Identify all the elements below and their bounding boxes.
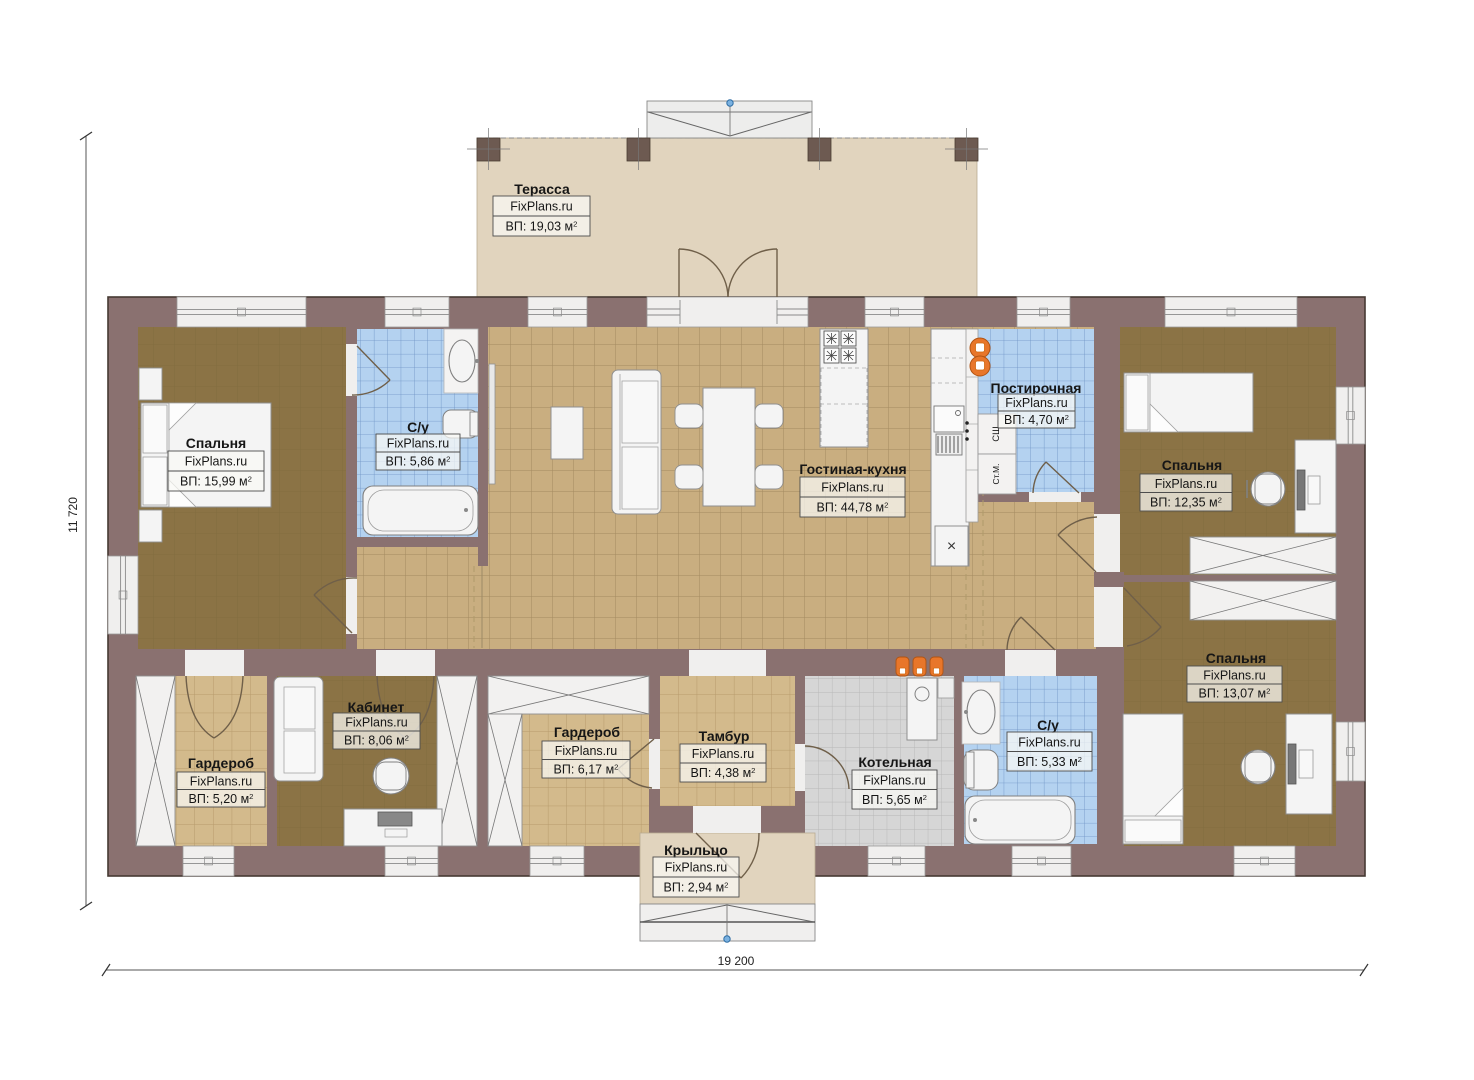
svg-text:FixPlans.ru: FixPlans.ru — [345, 716, 408, 730]
svg-text:Терасса: Терасса — [514, 181, 570, 197]
svg-text:FixPlans.ru: FixPlans.ru — [821, 481, 884, 495]
svg-text:С/у: С/у — [1037, 717, 1059, 733]
svg-text:FixPlans.ru: FixPlans.ru — [1018, 735, 1081, 749]
svg-text:Крыльцо: Крыльцо — [664, 842, 728, 858]
svg-text:FixPlans.ru: FixPlans.ru — [510, 200, 573, 214]
svg-text:ВП: 19,03 м2: ВП: 19,03 м2 — [506, 220, 578, 234]
svg-text:19 200: 19 200 — [718, 954, 755, 968]
svg-text:ВП: 4,38 м2: ВП: 4,38 м2 — [691, 766, 756, 780]
svg-text:FixPlans.ru: FixPlans.ru — [1005, 396, 1068, 410]
svg-text:×: × — [947, 538, 956, 555]
svg-text:FixPlans.ru: FixPlans.ru — [190, 774, 253, 788]
svg-text:11 720: 11 720 — [66, 497, 80, 533]
svg-text:ВП: 15,99 м2: ВП: 15,99 м2 — [180, 475, 252, 489]
svg-text:ВП: 2,94 м2: ВП: 2,94 м2 — [664, 881, 729, 895]
svg-text:Гостиная-кухня: Гостиная-кухня — [799, 461, 906, 477]
svg-text:Ст.М.: Ст.М. — [991, 464, 1001, 485]
svg-text:ВП: 5,86 м2: ВП: 5,86 м2 — [386, 455, 451, 469]
svg-text:ВП: 12,35 м2: ВП: 12,35 м2 — [1150, 495, 1222, 509]
svg-text:С/у: С/у — [407, 419, 429, 435]
svg-text:Спальня: Спальня — [186, 435, 246, 451]
svg-text:FixPlans.ru: FixPlans.ru — [185, 455, 248, 469]
svg-text:ВП: 6,17 м2: ВП: 6,17 м2 — [554, 762, 619, 776]
svg-text:Спальня: Спальня — [1206, 650, 1266, 666]
svg-text:FixPlans.ru: FixPlans.ru — [1155, 477, 1218, 491]
svg-text:FixPlans.ru: FixPlans.ru — [555, 744, 618, 758]
svg-text:ВП: 5,33 м2: ВП: 5,33 м2 — [1017, 755, 1082, 769]
svg-text:ВП: 5,20 м2: ВП: 5,20 м2 — [189, 792, 254, 806]
svg-text:FixPlans.ru: FixPlans.ru — [863, 773, 926, 787]
svg-text:FixPlans.ru: FixPlans.ru — [387, 437, 450, 451]
svg-text:Гардероб: Гардероб — [188, 755, 255, 771]
svg-text:ВП: 44,78 м2: ВП: 44,78 м2 — [817, 501, 889, 515]
svg-text:СШ: СШ — [991, 426, 1002, 442]
svg-text:FixPlans.ru: FixPlans.ru — [1203, 669, 1266, 683]
svg-text:FixPlans.ru: FixPlans.ru — [665, 861, 728, 875]
svg-text:FixPlans.ru: FixPlans.ru — [692, 747, 755, 761]
svg-text:Спальня: Спальня — [1162, 457, 1222, 473]
svg-text:ВП: 4,70 м2: ВП: 4,70 м2 — [1004, 413, 1069, 427]
svg-text:Тамбур: Тамбур — [699, 728, 750, 744]
svg-text:Гардероб: Гардероб — [554, 724, 621, 740]
svg-text:Котельная: Котельная — [858, 754, 931, 770]
svg-text:ВП: 8,06 м2: ВП: 8,06 м2 — [344, 734, 409, 748]
svg-text:ВП: 13,07 м2: ВП: 13,07 м2 — [1199, 687, 1271, 701]
svg-text:ВП: 5,65 м2: ВП: 5,65 м2 — [862, 793, 927, 807]
